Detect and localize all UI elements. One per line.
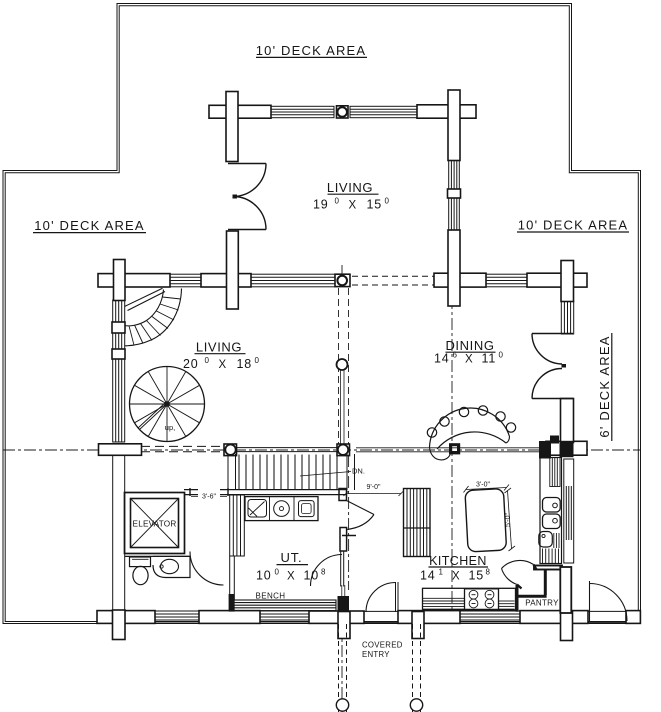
svg-text:LIVING: LIVING xyxy=(196,340,242,355)
svg-text:ENTRY: ENTRY xyxy=(362,650,390,659)
svg-text:X: X xyxy=(287,571,295,583)
svg-text:UT.: UT. xyxy=(281,550,303,565)
svg-text:0: 0 xyxy=(385,197,390,206)
svg-text:15: 15 xyxy=(367,198,383,212)
svg-text:10' DECK AREA: 10' DECK AREA xyxy=(518,218,629,233)
svg-text:18: 18 xyxy=(237,357,253,371)
svg-text:6' DECK AREA: 6' DECK AREA xyxy=(597,335,612,437)
svg-text:X: X xyxy=(452,571,460,583)
svg-text:X: X xyxy=(219,359,227,371)
svg-text:0: 0 xyxy=(255,356,260,365)
svg-text:X: X xyxy=(349,200,357,212)
svg-text:BENCH: BENCH xyxy=(255,592,285,601)
svg-text:14: 14 xyxy=(420,569,436,583)
svg-text:15: 15 xyxy=(469,569,485,583)
svg-text:20: 20 xyxy=(183,357,199,371)
svg-text:0: 0 xyxy=(335,197,340,206)
svg-text:0: 0 xyxy=(275,568,280,577)
svg-text:10' DECK AREA: 10' DECK AREA xyxy=(34,218,145,233)
svg-text:PANTRY: PANTRY xyxy=(525,599,559,608)
svg-text:14: 14 xyxy=(434,352,450,366)
svg-text:0: 0 xyxy=(499,351,504,360)
svg-text:3'-0": 3'-0" xyxy=(476,482,490,489)
svg-text:11: 11 xyxy=(482,352,497,366)
svg-text:DN.: DN. xyxy=(352,467,365,476)
svg-text:COVERED: COVERED xyxy=(362,641,403,650)
svg-text:up,: up, xyxy=(165,423,175,432)
svg-text:X: X xyxy=(465,354,473,366)
svg-text:9'-0": 9'-0" xyxy=(367,484,381,491)
svg-text:5'-0": 5'-0" xyxy=(505,513,512,527)
svg-text:10: 10 xyxy=(304,569,320,583)
svg-text:0: 0 xyxy=(205,356,210,365)
svg-text:1: 1 xyxy=(439,568,444,577)
svg-text:LIVING: LIVING xyxy=(327,180,373,195)
svg-text:6: 6 xyxy=(453,351,458,360)
svg-text:19: 19 xyxy=(313,198,329,212)
svg-text:3'-6": 3'-6" xyxy=(202,494,216,501)
svg-text:8: 8 xyxy=(486,568,491,577)
svg-text:10: 10 xyxy=(256,569,272,583)
svg-text:10' DECK AREA: 10' DECK AREA xyxy=(256,43,367,58)
svg-text:KITCHEN: KITCHEN xyxy=(429,554,487,568)
svg-text:ELEVATOR: ELEVATOR xyxy=(133,520,177,529)
svg-text:8: 8 xyxy=(321,568,326,577)
